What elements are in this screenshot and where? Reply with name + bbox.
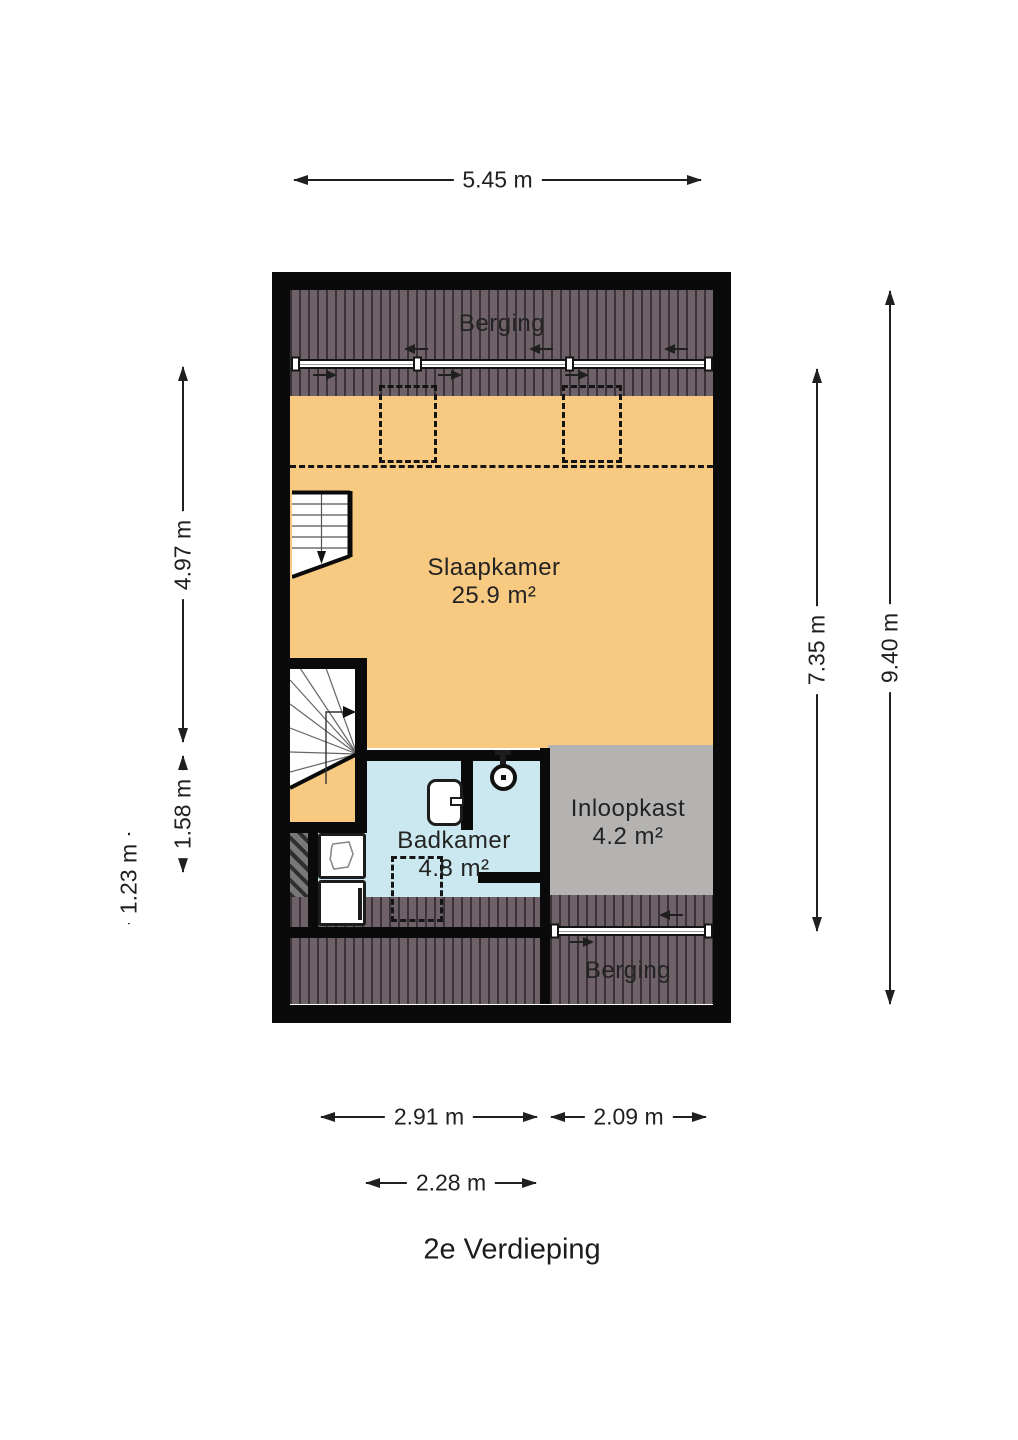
room-label-berging-bottom: Berging	[585, 957, 671, 985]
slide-direction-arrow	[565, 374, 587, 376]
dimension-right-total: 9.40 m	[879, 290, 901, 1005]
floor-plan-page: Berging Slaapkamer 25.9 m² Badkamer 4.8 …	[0, 0, 1018, 1440]
dimension-label: 2.09 m	[584, 1104, 672, 1131]
slide-direction-arrow	[570, 941, 592, 943]
dimension-left-middle: 1.58 m	[172, 755, 194, 873]
sliding-door-handle	[704, 357, 713, 372]
dimension-label: 2.91 m	[385, 1104, 473, 1131]
arrowhead-left-icon	[365, 1178, 380, 1188]
arrowhead-down-icon	[885, 990, 895, 1005]
arrowhead-up-icon	[178, 366, 188, 381]
room-name: Berging	[585, 957, 671, 985]
dimension-top-width: 5.45 m	[293, 169, 702, 191]
room-name: Slaapkamer	[427, 554, 560, 582]
sliding-door-handle	[565, 357, 574, 372]
sliding-door-handle	[413, 357, 422, 372]
dimension-bottom-left: 2.91 m	[320, 1106, 538, 1128]
wall	[272, 658, 355, 669]
dimension-left-upper: 4.97 m	[172, 366, 194, 743]
arrowhead-down-icon	[178, 728, 188, 743]
slide-direction-arrow	[666, 348, 688, 350]
arrowhead-left-icon	[320, 1112, 335, 1122]
sink-faucet-icon	[450, 797, 464, 806]
sliding-door-handle	[291, 357, 300, 372]
sliding-door-handle	[550, 924, 559, 939]
dimension-label: 4.97 m	[170, 510, 197, 598]
sliding-door-top	[291, 359, 713, 369]
room-name: Badkamer	[397, 827, 510, 855]
sliding-door-bottom	[550, 926, 713, 936]
room-label-berging-top: Berging	[459, 310, 545, 338]
slide-direction-arrow	[438, 374, 460, 376]
basket-glyph	[321, 836, 363, 876]
wall	[272, 822, 367, 833]
floor-title: 2e Verdieping	[423, 1234, 600, 1267]
arrowhead-up-icon	[885, 290, 895, 305]
arrowhead-down-icon	[812, 917, 822, 932]
slide-direction-arrow	[531, 348, 553, 350]
room-label-badkamer: Badkamer 4.8 m²	[397, 827, 510, 883]
dimension-label: 1.23 m	[116, 834, 143, 922]
wall	[355, 658, 367, 830]
sliding-door-handle	[704, 924, 713, 939]
room-area: 4.2 m²	[571, 823, 685, 851]
arrowhead-right-icon	[523, 1112, 538, 1122]
room-area: 4.8 m²	[397, 855, 510, 883]
dimension-label: 5.45 m	[453, 167, 541, 194]
laundry-basket-icon	[318, 833, 366, 879]
dimension-label: 1.58 m	[170, 770, 197, 858]
arrowhead-up-icon	[178, 755, 188, 770]
room-label-inloopkast: Inloopkast 4.2 m²	[571, 795, 685, 851]
arrowhead-right-icon	[687, 175, 702, 185]
slide-direction-arrow	[313, 374, 335, 376]
dimension-label: 2.28 m	[407, 1170, 495, 1197]
arrowhead-down-icon	[178, 858, 188, 873]
wall	[540, 748, 550, 1004]
room-name: Inloopkast	[571, 795, 685, 823]
wall	[308, 833, 318, 928]
arrowhead-right-icon	[692, 1112, 707, 1122]
room-name: Berging	[459, 310, 545, 338]
arrowhead-left-icon	[293, 175, 308, 185]
arrowhead-up-icon	[812, 368, 822, 383]
dimension-left-lower: 1.23 m	[118, 832, 140, 925]
slide-direction-arrow	[661, 914, 683, 916]
room-label-slaapkamer: Slaapkamer 25.9 m²	[427, 554, 560, 610]
arrowhead-right-icon	[522, 1178, 537, 1188]
dimension-label: 7.35 m	[804, 606, 831, 694]
sliding-door-rail	[552, 931, 711, 932]
dimension-right-inner: 7.35 m	[806, 368, 828, 932]
sliding-door-rail	[293, 364, 711, 365]
wall	[272, 927, 548, 938]
dimension-bottom-right: 2.09 m	[550, 1106, 707, 1128]
room-area: 25.9 m²	[427, 582, 560, 610]
arrowhead-left-icon	[550, 1112, 565, 1122]
dimension-label: 9.40 m	[877, 603, 904, 691]
shower-head-dot	[501, 775, 506, 780]
washer-handle	[358, 888, 362, 920]
dimension-bottom-bath: 2.28 m	[365, 1172, 537, 1194]
slide-direction-arrow	[406, 348, 428, 350]
washer-icon	[318, 880, 366, 926]
